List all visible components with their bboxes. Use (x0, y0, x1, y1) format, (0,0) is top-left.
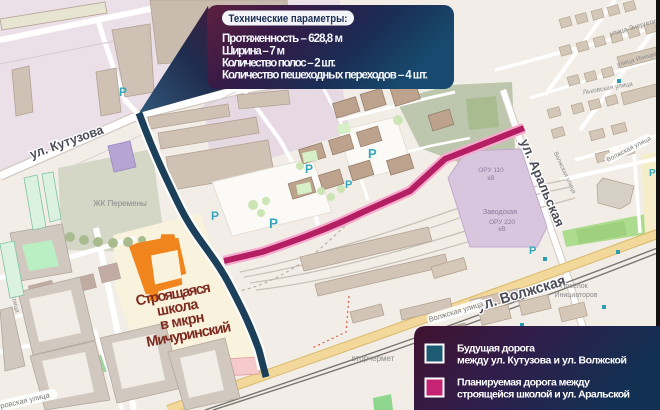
svg-text:строящейся школой и ул. Аральс: строящейся школой и ул. Аральской (457, 389, 630, 401)
svg-text:Заводская: Заводская (483, 209, 517, 216)
svg-text:ОРУ 110: ОРУ 110 (478, 167, 504, 174)
svg-text:P: P (649, 168, 656, 179)
svg-text:Количество пешеходных переходо: Количество пешеходных переходов – 4 шт. (222, 70, 428, 82)
svg-text:Количество полос – 2 шт.: Количество полос – 2 шт. (222, 58, 336, 70)
svg-text:P: P (269, 216, 278, 231)
svg-text:кВ: кВ (487, 175, 494, 182)
svg-text:Технические параметры:: Технические параметры: (229, 13, 348, 25)
svg-text:Инициаторов: Инициаторов (555, 292, 598, 299)
svg-text:вторчермет: вторчермет (352, 354, 395, 363)
svg-text:кВ: кВ (498, 226, 505, 233)
svg-text:ЖК Перемены: ЖК Перемены (93, 199, 147, 208)
svg-text:P: P (368, 146, 377, 161)
svg-text:P: P (305, 162, 313, 176)
svg-text:Посёлок: Посёлок (560, 283, 588, 290)
svg-text:P: P (211, 209, 219, 223)
svg-text:Протяженность – 628,8 м: Протяженность – 628,8 м (222, 33, 343, 45)
svg-text:Ширина – 7 м: Ширина – 7 м (222, 46, 285, 58)
svg-text:P: P (119, 85, 127, 99)
svg-text:Планируемая дорога между: Планируемая дорога между (457, 377, 590, 389)
svg-text:P: P (529, 245, 536, 257)
svg-text:Будущая дорога: Будущая дорога (457, 343, 535, 355)
svg-text:ОРУ 220: ОРУ 220 (489, 219, 515, 226)
svg-text:P: P (345, 179, 352, 191)
svg-text:между ул. Кутузова и ул. Волжс: между ул. Кутузова и ул. Волжской (457, 355, 627, 367)
